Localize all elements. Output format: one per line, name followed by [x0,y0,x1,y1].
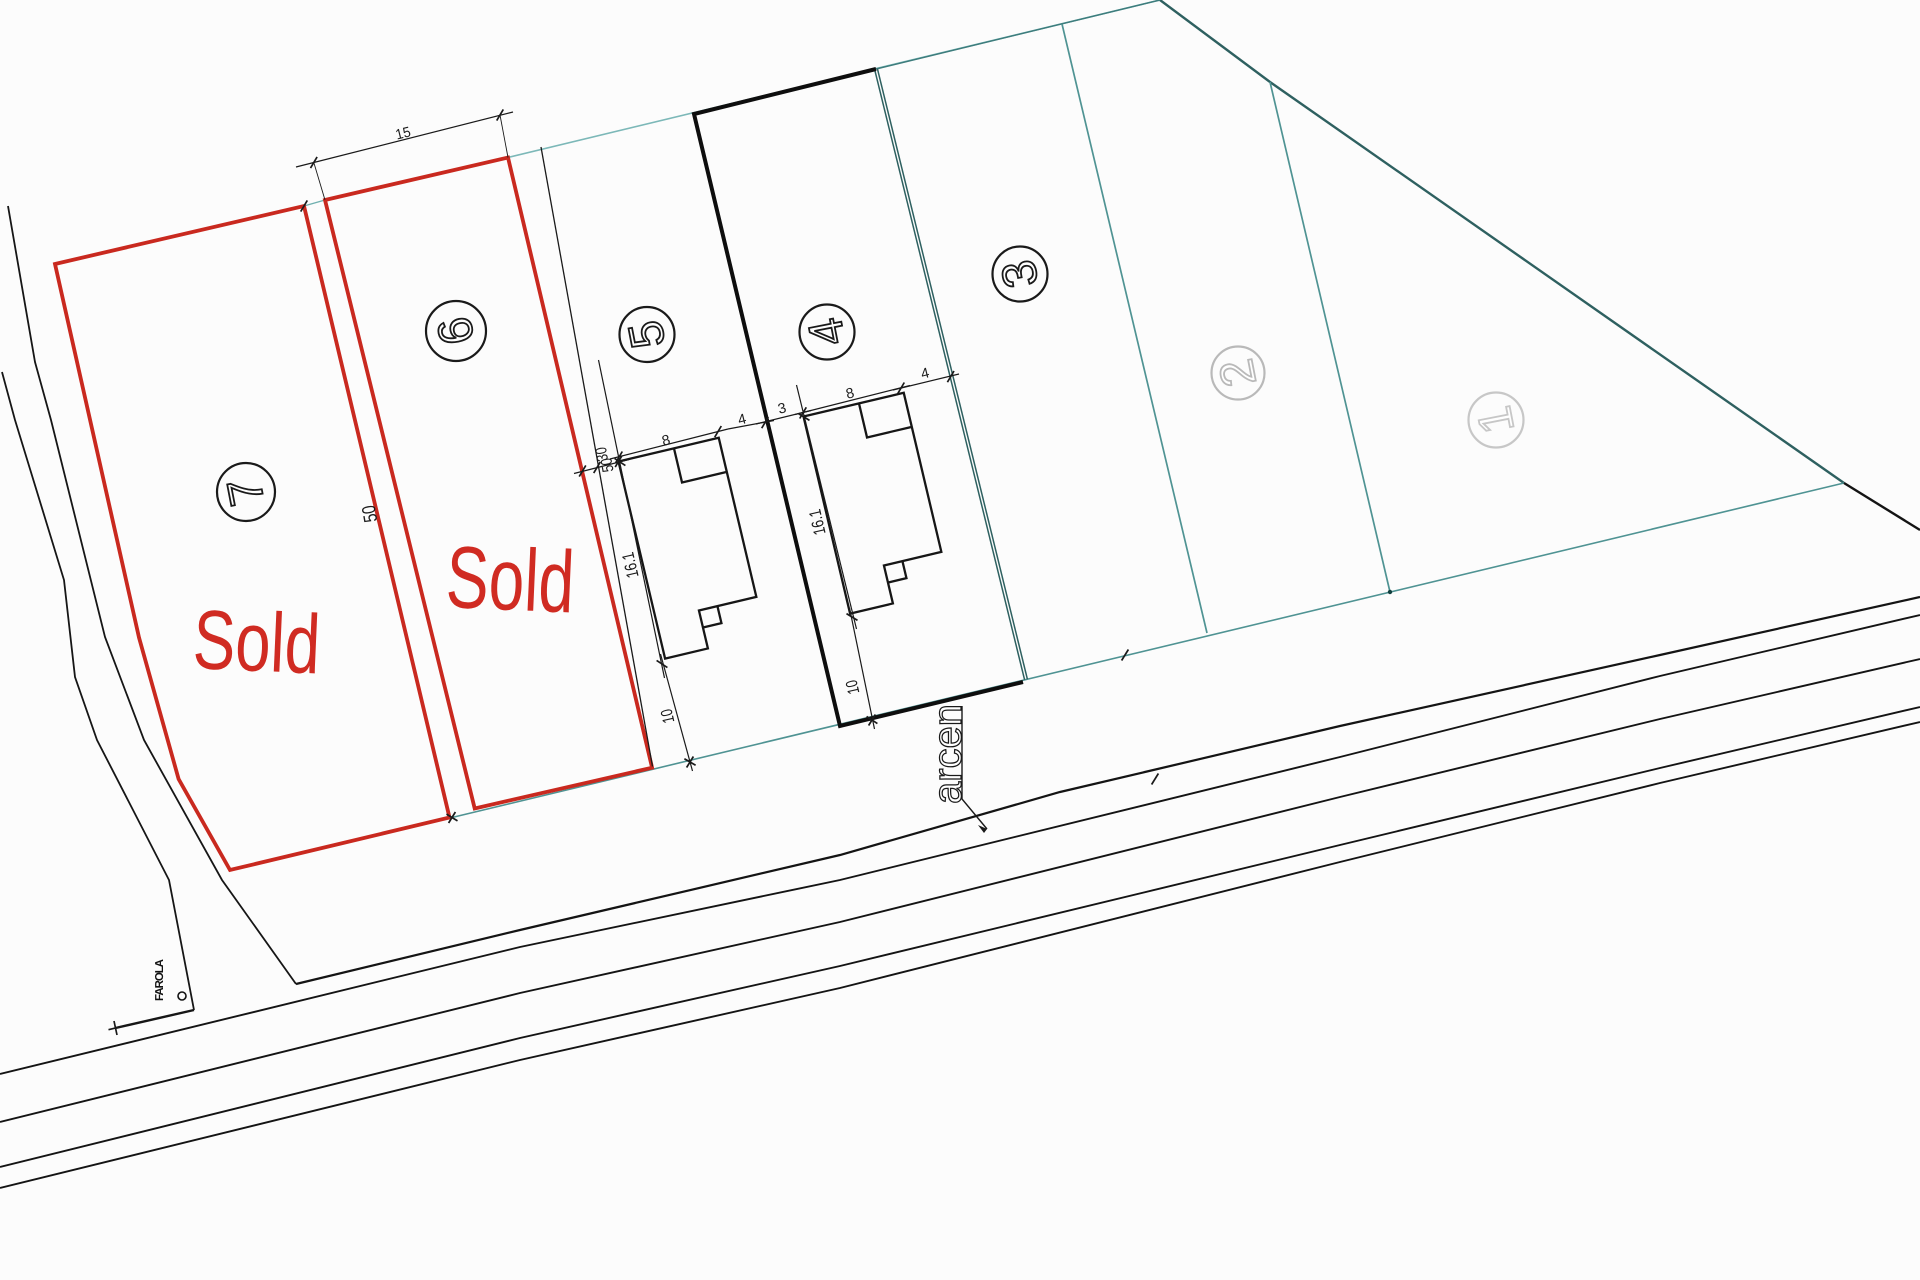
svg-text:FAROLA: FAROLA [154,959,166,1001]
svg-text:50: 50 [359,504,383,524]
svg-text:Sold: Sold [444,527,576,631]
svg-text:arcen: arcen [926,704,970,804]
svg-text:Sold: Sold [191,592,322,691]
